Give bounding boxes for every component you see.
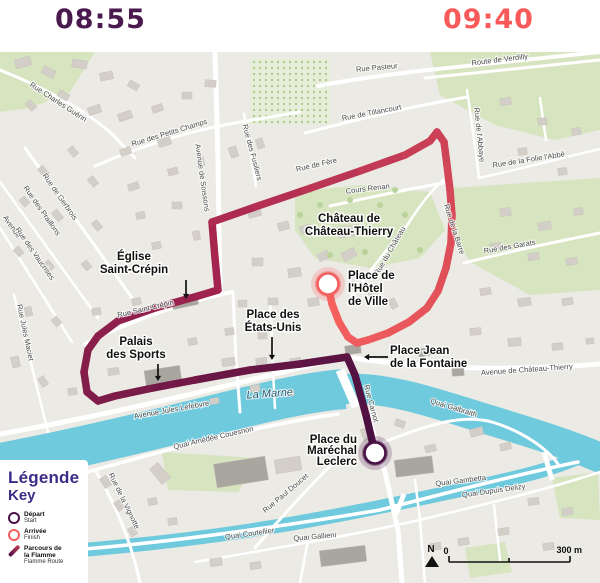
start-time: 08:55	[55, 4, 146, 35]
route-map: Rue Charles GuérinRue des Petits ChampsA…	[0, 52, 600, 583]
depart-marker	[358, 436, 392, 470]
time-header: 08:55 09:40	[0, 0, 600, 52]
poi-label: Leclerc	[317, 456, 358, 468]
poi-label: de Ville	[348, 296, 388, 308]
route-line-icon	[8, 545, 20, 557]
poi-label: l'Hôtel	[348, 283, 383, 295]
poi-label: Palais	[119, 336, 152, 348]
end-time: 09:40	[443, 4, 534, 35]
poi-label: Place de	[348, 270, 395, 282]
map-background	[0, 52, 600, 583]
poi-label: Église	[117, 250, 151, 263]
poi-label: des Sports	[106, 349, 165, 361]
poi-label: Saint-Crépin	[100, 264, 168, 276]
arrivee-marker	[311, 267, 345, 301]
depart-marker-icon	[8, 512, 20, 524]
legend-title-en: Key	[8, 488, 88, 504]
legend-item-arrivee: Arrivée Finish	[8, 528, 88, 542]
legend-title-fr: Légende	[8, 469, 88, 487]
north-label: N	[427, 544, 434, 555]
legend-item-depart: Départ Start	[8, 511, 88, 525]
poi-label: Place Jean	[390, 345, 449, 357]
scale-zero: 0	[443, 546, 448, 556]
poi-label: Place des	[246, 309, 299, 321]
poi-label: Château de	[318, 213, 380, 225]
legend-item-route: Parcours de la Flamme Flamme Route	[8, 545, 88, 566]
scale-distance: 300 m	[556, 545, 582, 555]
poi-label: États-Unis	[245, 321, 302, 334]
route-dashes-icon	[160, 15, 436, 33]
poi-label: Château-Thierry	[305, 226, 394, 238]
legend-panel: Légende Key Départ Start Arrivée Finish …	[0, 460, 88, 583]
poi-label: de la Fontaine	[390, 358, 467, 370]
arrivee-marker-icon	[8, 529, 20, 541]
